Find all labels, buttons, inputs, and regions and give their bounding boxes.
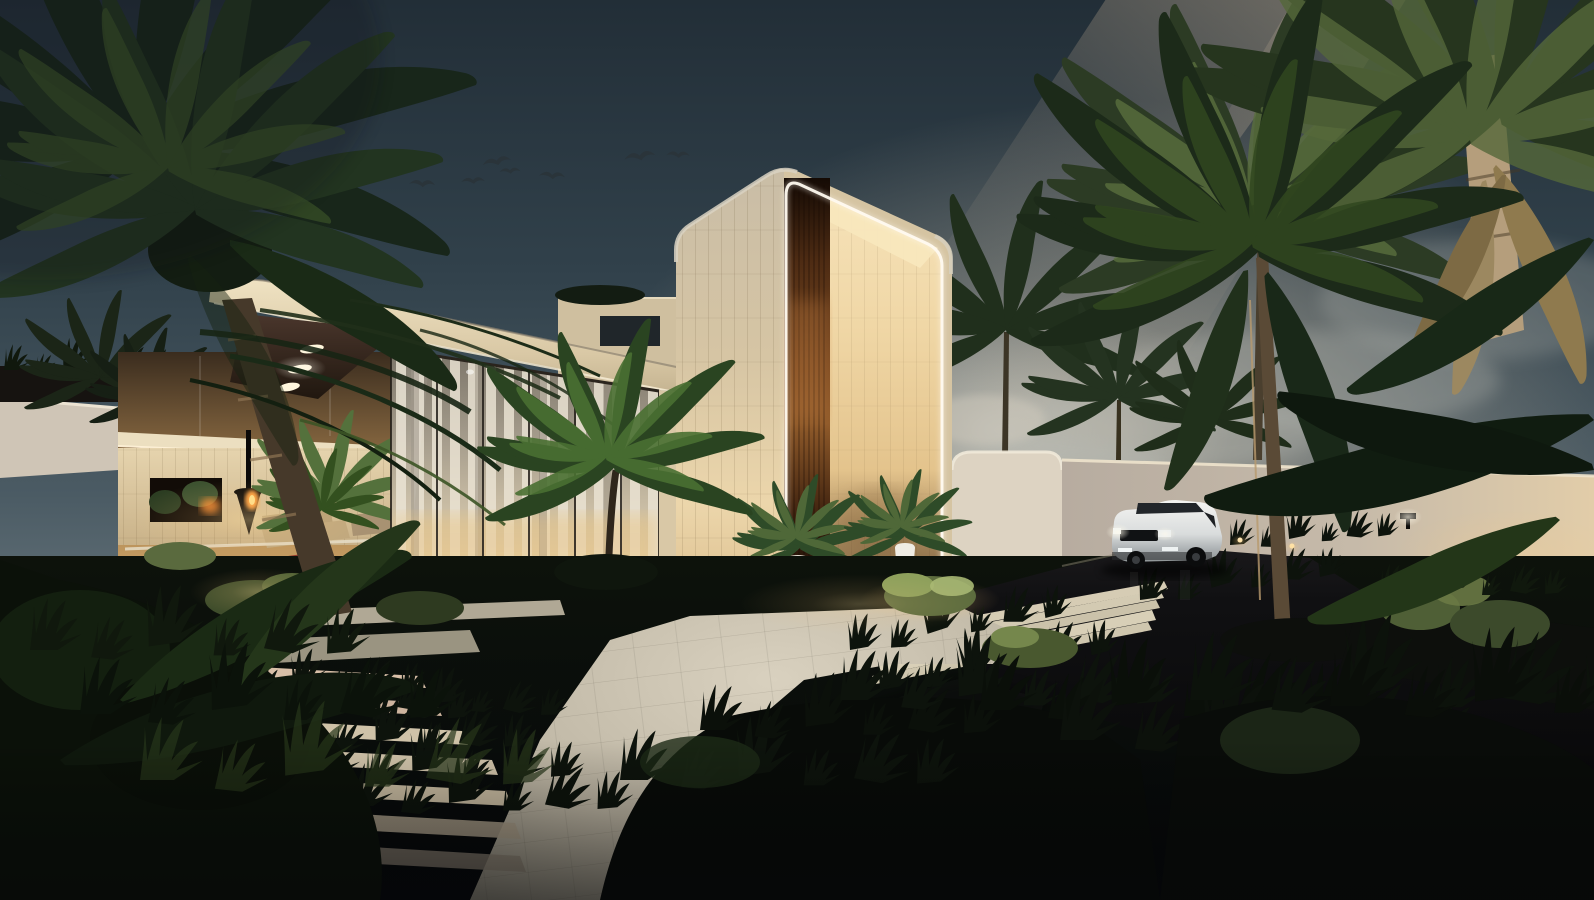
- bollard-glow: [1394, 508, 1422, 526]
- architectural-render: Twilight architectural rendering of a mo…: [0, 0, 1594, 900]
- suv-drl-left: [1118, 548, 1132, 552]
- suv-shadow: [1101, 561, 1229, 579]
- render-canvas: [0, 0, 1594, 900]
- suv-drl-right: [1162, 547, 1178, 551]
- bottom-vignette: [0, 740, 1594, 900]
